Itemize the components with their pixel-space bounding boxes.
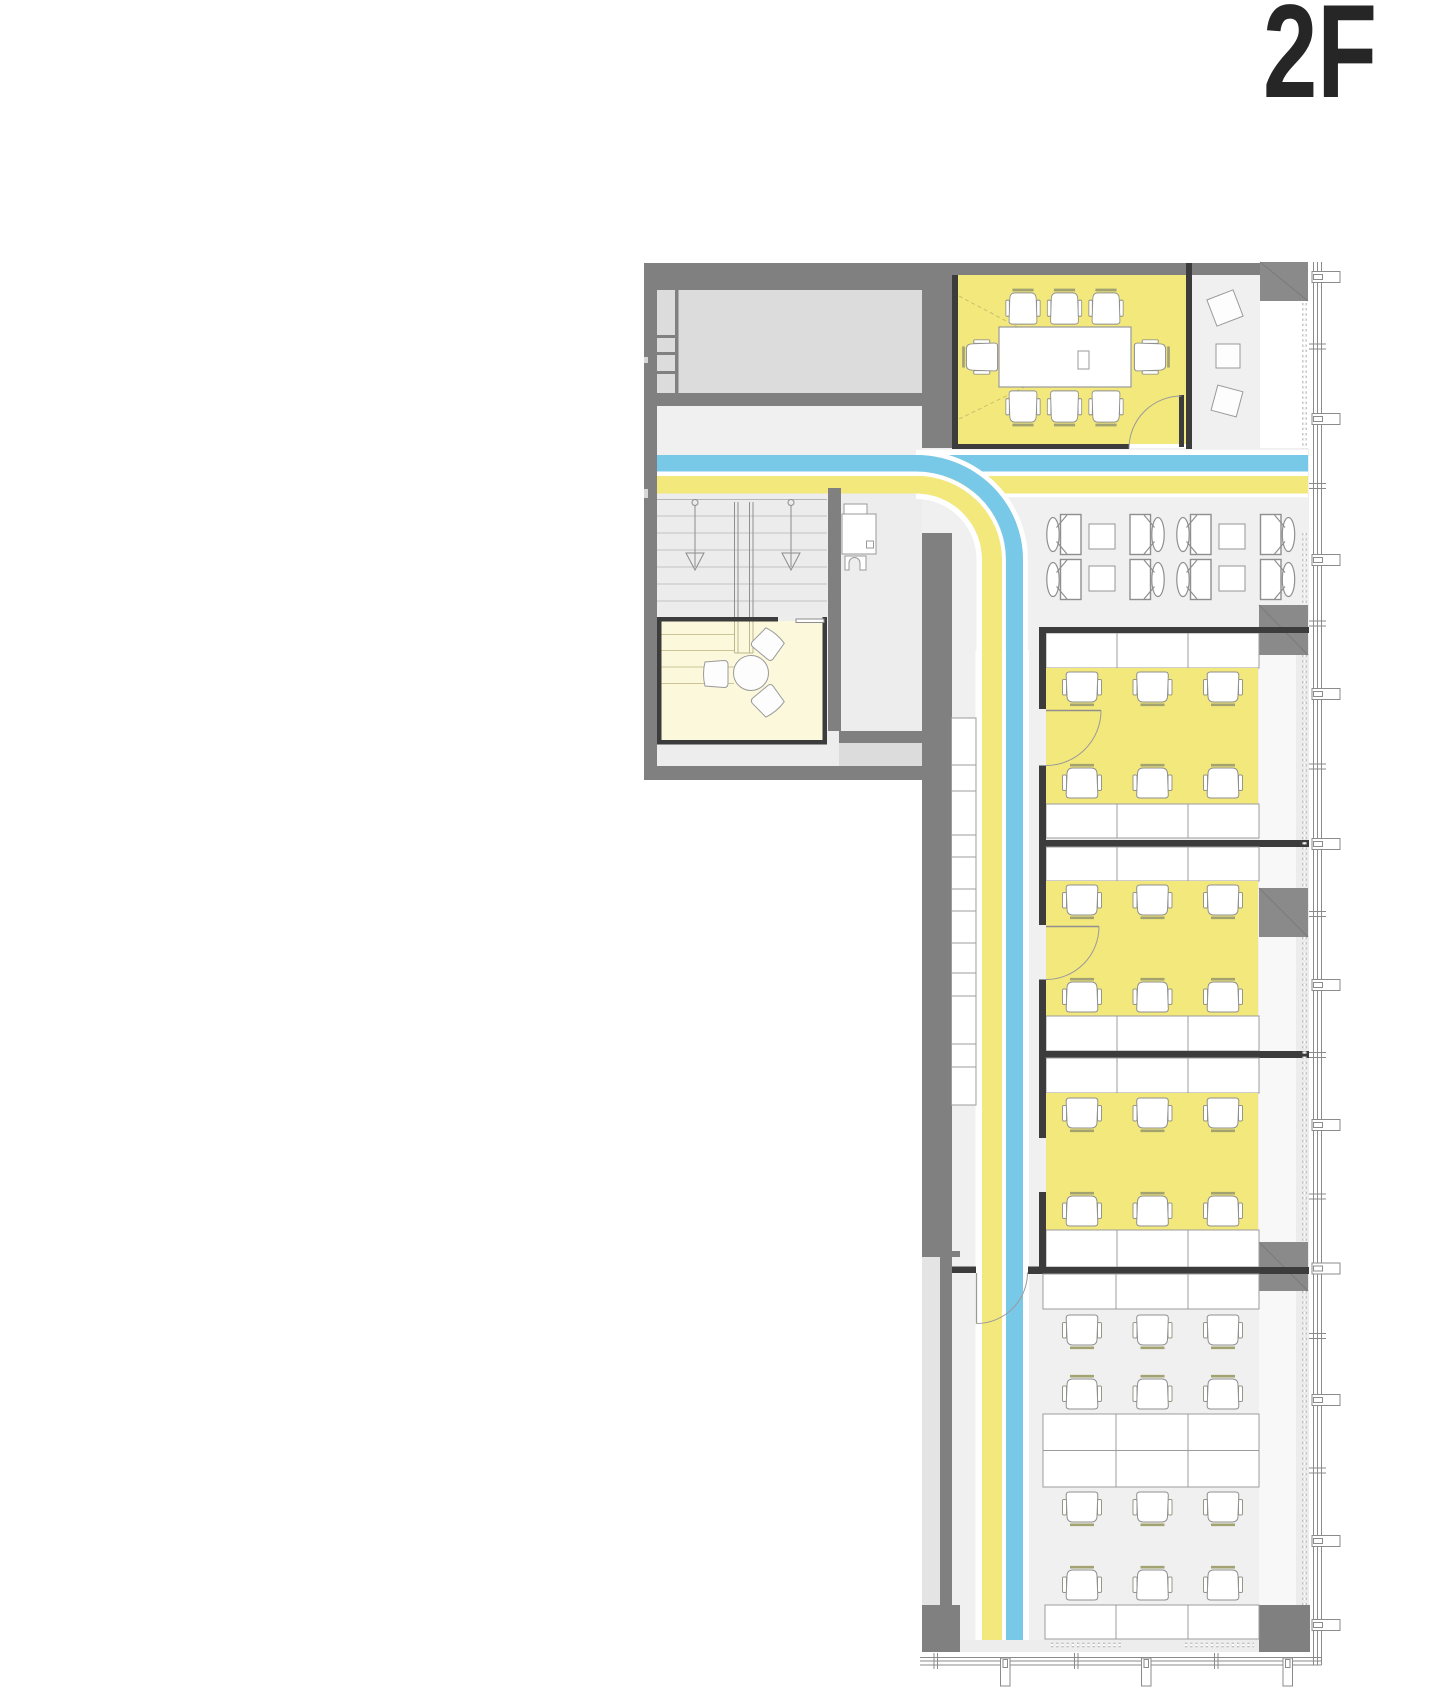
svg-text:2F: 2F	[1263, 0, 1377, 126]
